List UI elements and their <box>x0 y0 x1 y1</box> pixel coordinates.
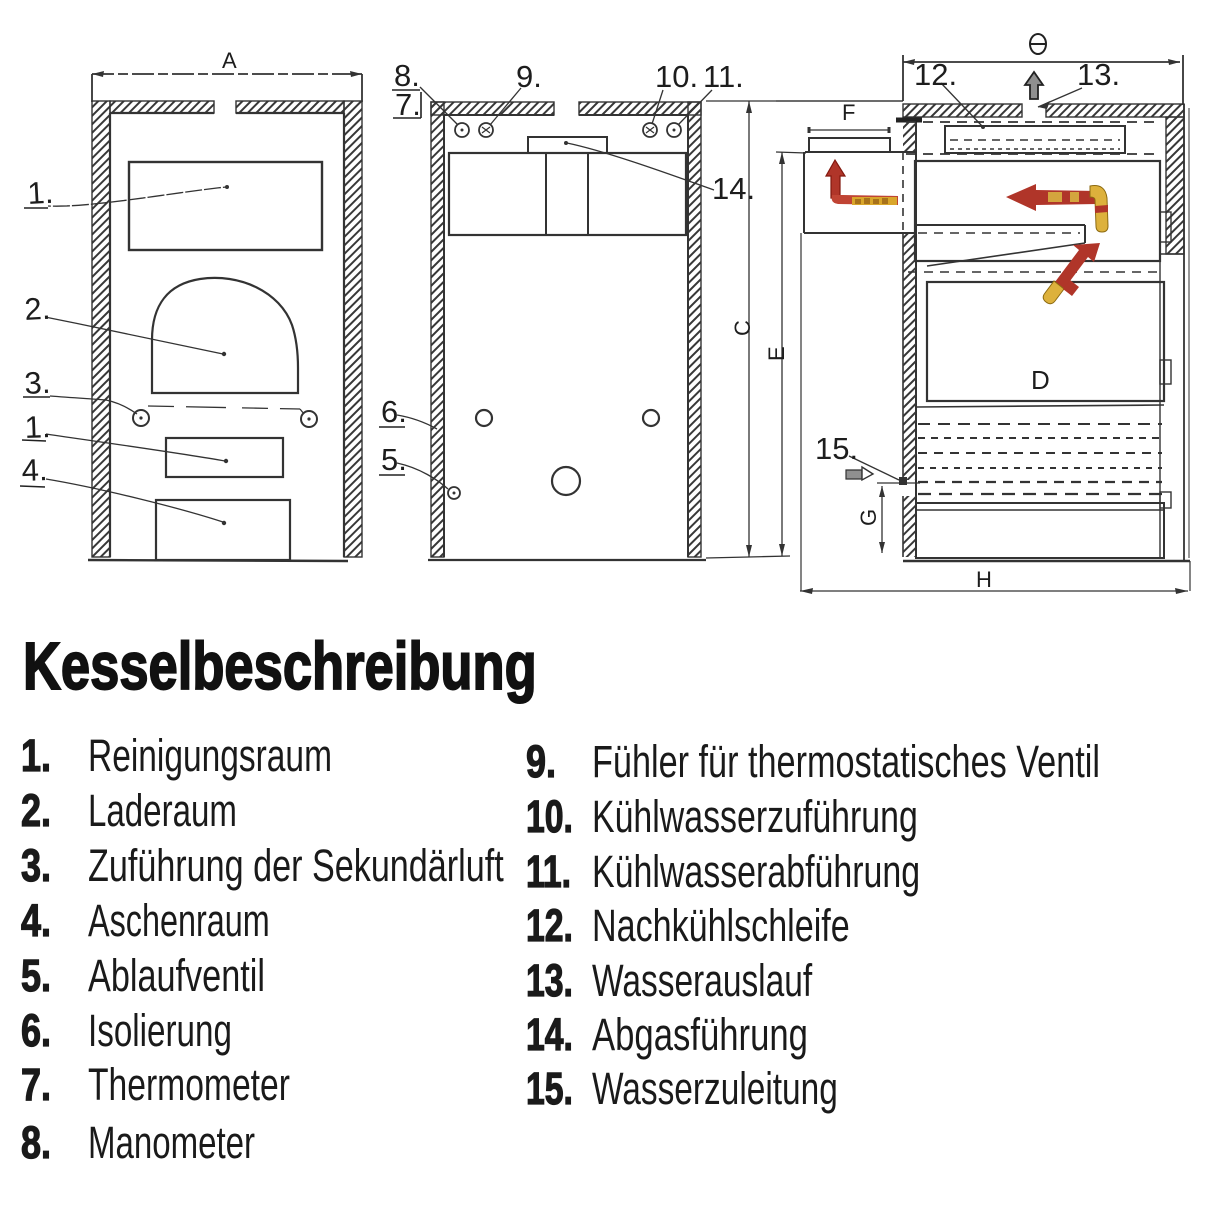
svg-text:10.: 10. <box>655 59 698 94</box>
svg-text:Laderaum: Laderaum <box>88 786 237 836</box>
svg-text:3.: 3. <box>24 365 52 401</box>
svg-text:9.: 9. <box>526 736 556 787</box>
svg-text:Reinigungsraum: Reinigungsraum <box>88 731 332 781</box>
svg-text:Aschenraum: Aschenraum <box>88 897 270 946</box>
svg-text:A: A <box>222 48 237 73</box>
svg-text:2.: 2. <box>21 785 51 836</box>
svg-text:12.: 12. <box>526 901 573 951</box>
svg-text:Thermometer: Thermometer <box>88 1060 290 1110</box>
svg-text:11.: 11. <box>526 847 571 897</box>
svg-text:F: F <box>842 100 855 125</box>
svg-text:Ablaufventil: Ablaufventil <box>88 952 265 1002</box>
svg-text:2.: 2. <box>24 291 52 327</box>
svg-text:1.: 1. <box>27 175 55 211</box>
svg-text:H: H <box>976 567 992 592</box>
svg-text:7.: 7. <box>21 1059 51 1110</box>
svg-text:Wasserzuleitung: Wasserzuleitung <box>592 1064 838 1114</box>
svg-text:E: E <box>764 346 789 361</box>
svg-text:8.: 8. <box>21 1117 51 1168</box>
svg-text:13.: 13. <box>526 956 573 1006</box>
svg-text:7.: 7. <box>395 87 421 122</box>
svg-text:6.: 6. <box>21 1005 51 1056</box>
svg-text:15.: 15. <box>815 431 858 466</box>
svg-text:Nachkühlschleife: Nachkühlschleife <box>592 902 850 952</box>
svg-text:Zuführung der Sekundärluft: Zuführung der Sekundärluft <box>88 842 504 892</box>
svg-text:Abgasführung: Abgasführung <box>592 1010 808 1060</box>
svg-text:Kesselbeschreibung: Kesselbeschreibung <box>23 629 537 704</box>
svg-text:15.: 15. <box>526 1064 573 1114</box>
svg-text:Manometer: Manometer <box>88 1118 255 1168</box>
svg-text:D: D <box>1031 365 1050 395</box>
svg-text:6.: 6. <box>381 394 407 429</box>
svg-text:14.: 14. <box>526 1010 573 1060</box>
svg-text:10.: 10. <box>526 792 573 842</box>
svg-text:Wasserauslauf: Wasserauslauf <box>592 956 813 1006</box>
svg-text:4.: 4. <box>21 452 48 488</box>
svg-text:Isolierung: Isolierung <box>88 1006 232 1056</box>
svg-text:C: C <box>730 320 755 336</box>
svg-text:4.: 4. <box>21 895 51 946</box>
svg-text:Kühlwasserabführung: Kühlwasserabführung <box>592 847 920 897</box>
svg-text:Kühlwasserzuführung: Kühlwasserzuführung <box>592 792 918 842</box>
svg-text:5.: 5. <box>21 950 51 1001</box>
svg-text:1.: 1. <box>21 730 51 781</box>
svg-text:G: G <box>856 509 881 526</box>
svg-text:9.: 9. <box>516 59 542 94</box>
svg-text:3.: 3. <box>21 840 51 891</box>
svg-text:5.: 5. <box>381 442 407 477</box>
svg-text:11.: 11. <box>703 59 744 94</box>
svg-text:Fühler für thermostatisches Ve: Fühler für thermostatisches Ventil <box>592 738 1100 788</box>
svg-text:12.: 12. <box>914 57 957 92</box>
svg-text:13.: 13. <box>1077 57 1120 92</box>
svg-text:14.: 14. <box>712 171 755 206</box>
